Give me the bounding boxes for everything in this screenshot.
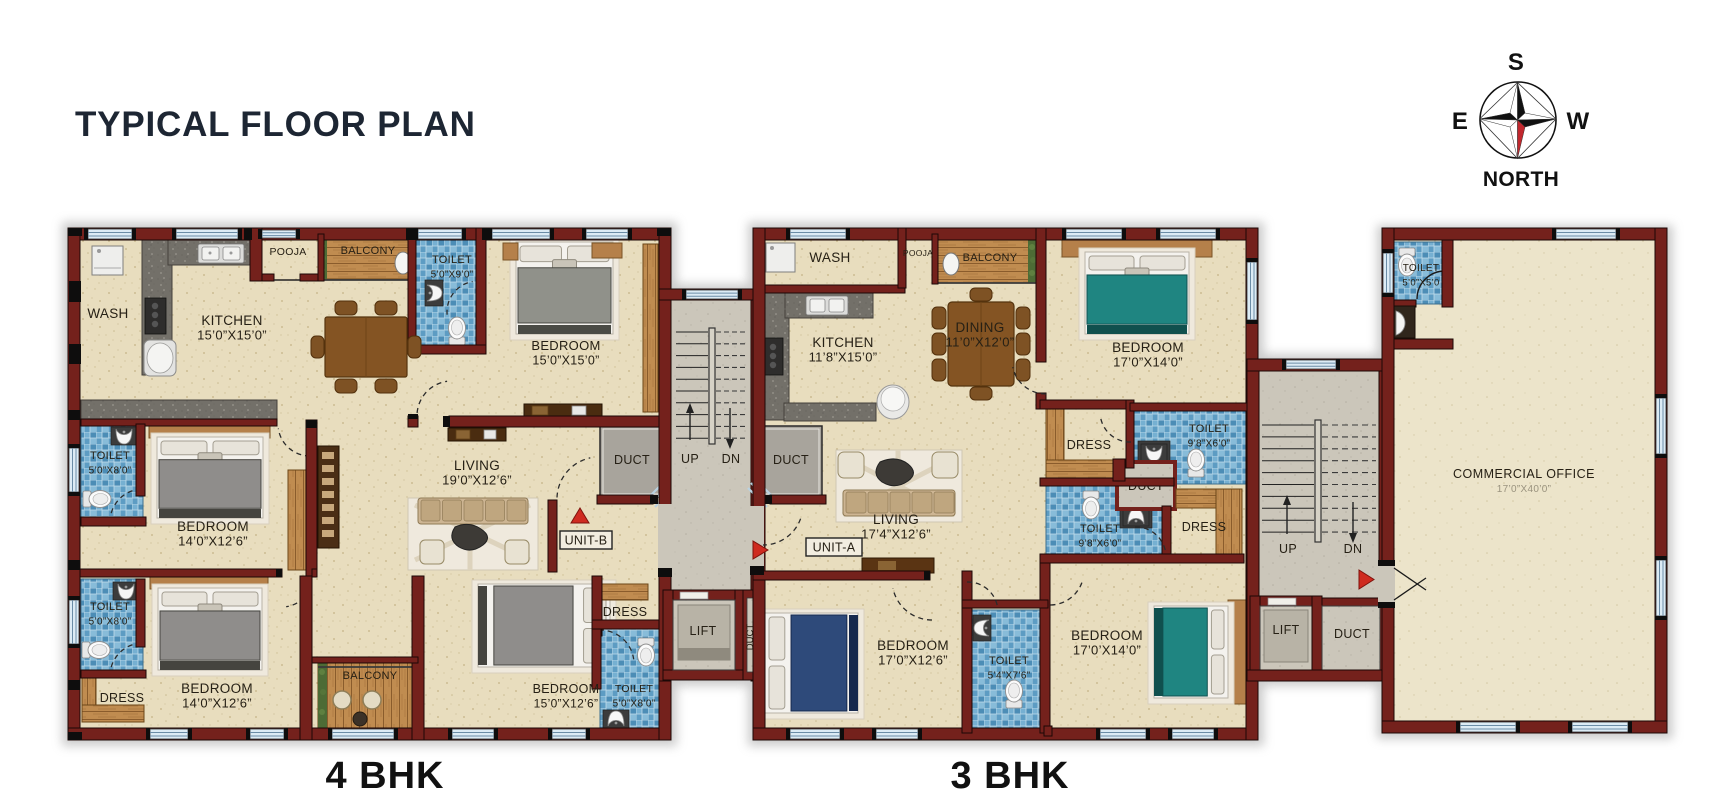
svg-text:17’0’X14’0”: 17’0’X14’0” bbox=[1073, 643, 1141, 658]
svg-text:5’0”X8’0”: 5’0”X8’0” bbox=[89, 466, 132, 477]
svg-text:5’4”X7’6”: 5’4”X7’6” bbox=[988, 671, 1031, 682]
svg-text:BEDROOM: BEDROOM bbox=[1112, 340, 1184, 355]
svg-text:LIVING: LIVING bbox=[454, 458, 500, 473]
svg-text:DUCT: DUCT bbox=[773, 453, 809, 467]
svg-text:BEDROOM: BEDROOM bbox=[181, 681, 253, 696]
svg-text:14’0”X12’6”: 14’0”X12’6” bbox=[178, 534, 248, 549]
svg-text:17’0”X14’0”: 17’0”X14’0” bbox=[1113, 355, 1183, 370]
svg-text:LIVING: LIVING bbox=[873, 512, 919, 527]
svg-text:TOILET: TOILET bbox=[90, 601, 130, 613]
svg-text:3 BHK: 3 BHK bbox=[950, 755, 1069, 797]
svg-text:15’0”X15’0”: 15’0”X15’0” bbox=[197, 328, 267, 343]
svg-text:UNIT-A: UNIT-A bbox=[813, 541, 856, 555]
svg-text:4 BHK: 4 BHK bbox=[325, 755, 444, 797]
svg-text:DRESS: DRESS bbox=[100, 691, 145, 705]
svg-text:11’8”X15’0”: 11’8”X15’0” bbox=[809, 350, 878, 365]
svg-text:BEDROOM: BEDROOM bbox=[177, 519, 249, 534]
svg-text:BALCONY: BALCONY bbox=[343, 670, 398, 682]
svg-text:DINING: DINING bbox=[955, 320, 1004, 335]
svg-text:DUCT: DUCT bbox=[1334, 627, 1370, 641]
svg-text:TOILET: TOILET bbox=[989, 655, 1029, 667]
svg-text:UP: UP bbox=[1279, 542, 1297, 556]
svg-text:11’0”X12’0”: 11’0”X12’0” bbox=[946, 335, 1015, 350]
svg-text:19’0”X12’6”: 19’0”X12’6” bbox=[442, 473, 512, 488]
svg-text:LIFT: LIFT bbox=[1273, 623, 1300, 637]
svg-text:17’4”X12’6”: 17’4”X12’6” bbox=[861, 527, 931, 542]
svg-text:UNIT-B: UNIT-B bbox=[565, 534, 608, 548]
svg-text:BEDROOM: BEDROOM bbox=[531, 338, 600, 353]
svg-text:DN: DN bbox=[722, 452, 741, 466]
svg-text:5’0”X8’0”: 5’0”X8’0” bbox=[613, 699, 656, 710]
svg-text:WASH: WASH bbox=[809, 250, 850, 265]
svg-text:BALCONY: BALCONY bbox=[341, 245, 396, 257]
svg-text:TOILET: TOILET bbox=[1403, 263, 1440, 274]
svg-text:TOILET: TOILET bbox=[1080, 523, 1120, 535]
svg-text:15’0”X15’0”: 15’0”X15’0” bbox=[532, 354, 599, 368]
svg-text:LIFT: LIFT bbox=[690, 624, 717, 638]
svg-text:NORTH: NORTH bbox=[1483, 168, 1559, 191]
svg-text:W: W bbox=[1567, 108, 1590, 135]
svg-text:14’0”X12’6”: 14’0”X12’6” bbox=[182, 696, 252, 711]
svg-text:E: E bbox=[1452, 108, 1468, 135]
svg-text:5’0”X8’0”: 5’0”X8’0” bbox=[89, 617, 132, 628]
svg-text:TOILET: TOILET bbox=[432, 254, 472, 266]
svg-text:TOILET: TOILET bbox=[90, 450, 130, 462]
svg-text:DN: DN bbox=[1344, 542, 1363, 556]
svg-text:S: S bbox=[1508, 49, 1524, 76]
svg-text:BEDROOM: BEDROOM bbox=[533, 682, 600, 696]
svg-text:UP: UP bbox=[681, 452, 699, 466]
svg-text:KITCHEN: KITCHEN bbox=[812, 335, 873, 350]
svg-text:POOJA: POOJA bbox=[269, 246, 306, 258]
svg-text:9’8”X6’0”: 9’8”X6’0” bbox=[1079, 539, 1122, 550]
svg-text:DRESS: DRESS bbox=[1067, 438, 1112, 452]
svg-text:WASH: WASH bbox=[87, 306, 128, 321]
svg-text:TYPICAL FLOOR PLAN: TYPICAL FLOOR PLAN bbox=[75, 105, 476, 144]
svg-text:17’0”X12’6”: 17’0”X12’6” bbox=[878, 653, 948, 668]
svg-text:COMMERCIAL OFFICE: COMMERCIAL OFFICE bbox=[1453, 467, 1595, 481]
svg-text:DRESS: DRESS bbox=[1182, 520, 1227, 534]
svg-text:15’0”X12’6”: 15’0”X12’6” bbox=[534, 697, 599, 711]
svg-text:TOILET: TOILET bbox=[1189, 423, 1229, 435]
svg-text:5’0”X9’0”: 5’0”X9’0” bbox=[431, 270, 474, 281]
svg-text:DRESS: DRESS bbox=[603, 605, 648, 619]
svg-text:KITCHEN: KITCHEN bbox=[201, 313, 262, 328]
svg-text:BEDROOM: BEDROOM bbox=[877, 638, 949, 653]
svg-text:BEDROOM: BEDROOM bbox=[1071, 628, 1143, 643]
svg-text:9’8”X6’0”: 9’8”X6’0” bbox=[1188, 439, 1231, 450]
svg-text:TOILET: TOILET bbox=[615, 683, 654, 695]
svg-text:5’0”X5’0: 5’0”X5’0 bbox=[1402, 278, 1439, 289]
svg-text:DUCT: DUCT bbox=[614, 453, 650, 467]
svg-text:POOJA: POOJA bbox=[903, 248, 933, 258]
svg-text:BALCONY: BALCONY bbox=[963, 252, 1018, 264]
svg-text:17’0”X40’0”: 17’0”X40’0” bbox=[1497, 484, 1551, 495]
